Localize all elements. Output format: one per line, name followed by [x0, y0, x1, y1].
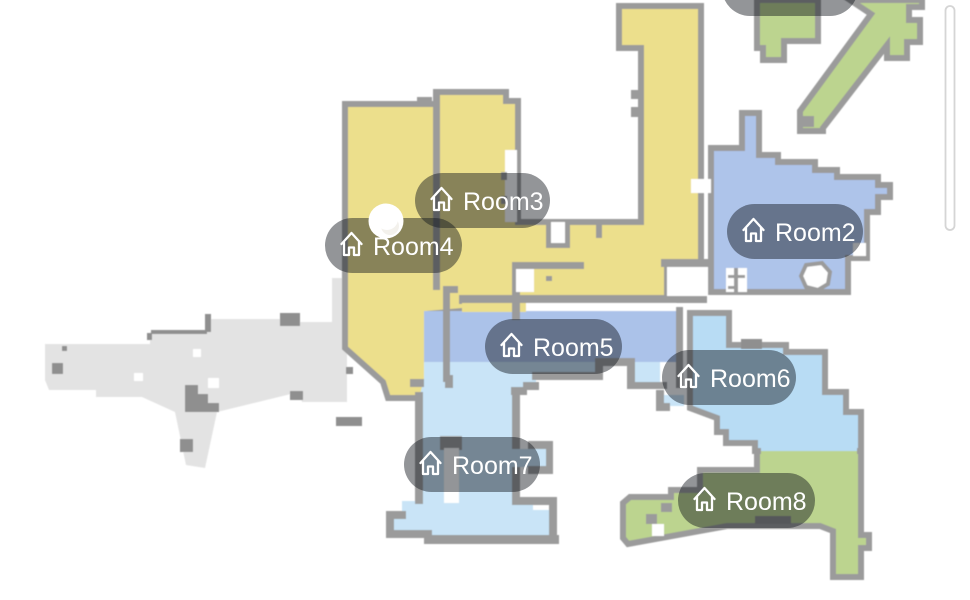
svg-text:Room6: Room6	[710, 365, 791, 393]
svg-text:Room8: Room8	[726, 488, 807, 516]
svg-text:Room2: Room2	[775, 219, 856, 247]
svg-text:Room5: Room5	[533, 334, 614, 362]
svg-text:Room3: Room3	[463, 188, 544, 216]
svg-text:Room7: Room7	[452, 452, 533, 480]
